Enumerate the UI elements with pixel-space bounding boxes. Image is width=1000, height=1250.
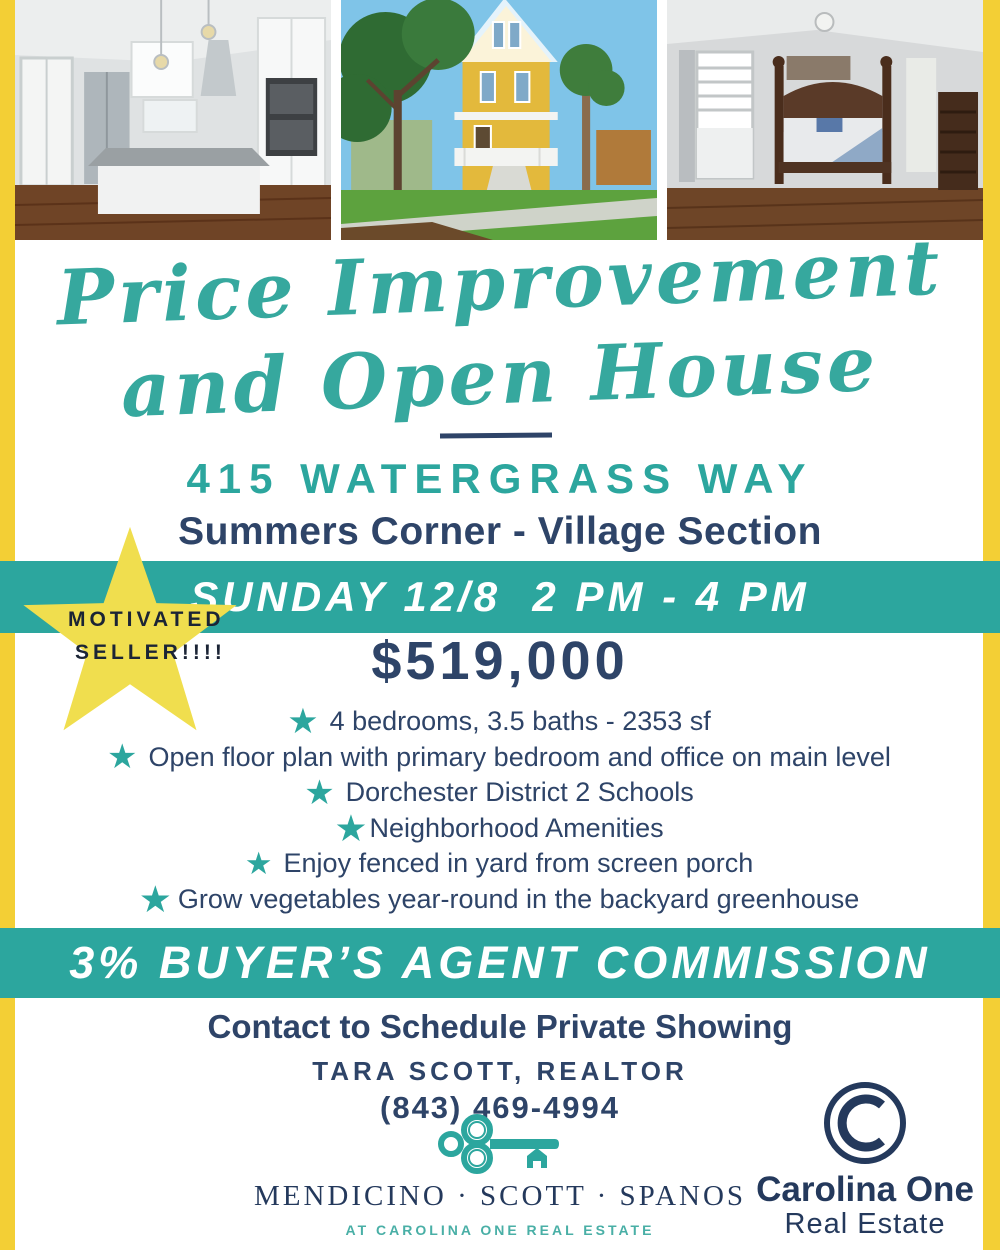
star-bullet-icon: ★ [304, 776, 334, 810]
commission-banner-text: 3% BUYER’S AGENT COMMISSION [69, 937, 930, 989]
star-bullet-icon: ★ [245, 848, 273, 879]
feature-item: ★ Enjoy fenced in yard from screen porch [15, 846, 983, 882]
bedroom-photo [667, 0, 983, 240]
open-house-banner-text: SUNDAY 12/8 2 PM - 4 PM [190, 573, 810, 621]
key-icon [437, 1114, 565, 1174]
features-list: ★ 4 bedrooms, 3.5 baths - 2353 sf ★ Open… [15, 704, 983, 917]
feature-text: 4 bedrooms, 3.5 baths - 2353 sf [330, 706, 711, 737]
feature-item: ★ 4 bedrooms, 3.5 baths - 2353 sf [15, 704, 983, 740]
house-exterior-photo-graphic [341, 0, 657, 240]
bedroom-photo-graphic [667, 0, 983, 240]
headline-underline [440, 433, 552, 439]
brand-subname: Real Estate [752, 1208, 978, 1241]
star-bullet-icon: ★ [139, 881, 172, 918]
star-bullet-icon: ★ [107, 740, 137, 774]
feature-item: ★ Dorchester District 2 Schools [15, 775, 983, 811]
kitchen-photo-graphic [15, 0, 331, 240]
circle-c-monogram-icon [822, 1080, 908, 1166]
feature-text: Neighborhood Amenities [369, 813, 663, 844]
feature-item: ★ Neighborhood Amenities [15, 811, 983, 847]
star-bullet-icon: ★ [334, 810, 367, 847]
commission-banner: 3% BUYER’S AGENT COMMISSION [0, 928, 1000, 998]
kitchen-photo [15, 0, 331, 240]
feature-text: Enjoy fenced in yard from screen porch [284, 848, 754, 879]
feature-text: Open floor plan with primary bedroom and… [149, 742, 891, 773]
price-text: $519,000 [0, 630, 1000, 692]
brand-name: Carolina One [752, 1170, 978, 1210]
motivated-seller-line1: MOTIVATED [68, 608, 225, 632]
photo-strip [15, 0, 983, 240]
key-icon-graphic [437, 1114, 565, 1174]
brand-logo: Carolina One Real Estate [752, 1080, 978, 1241]
contact-heading: Contact to Schedule Private Showing [0, 1008, 1000, 1046]
property-address: 415 WATERGRASS WAY [0, 455, 1000, 503]
feature-item: ★ Open floor plan with primary bedroom a… [15, 740, 983, 776]
feature-text: Grow vegetables year-round in the backya… [178, 884, 859, 915]
house-exterior-photo [341, 0, 657, 240]
flyer: Price Improvement and Open House 415 WAT… [0, 0, 1000, 1250]
star-bullet-icon: ★ [287, 704, 318, 739]
feature-item: ★ Grow vegetables year-round in the back… [15, 882, 983, 918]
feature-text: Dorchester District 2 Schools [346, 777, 694, 808]
